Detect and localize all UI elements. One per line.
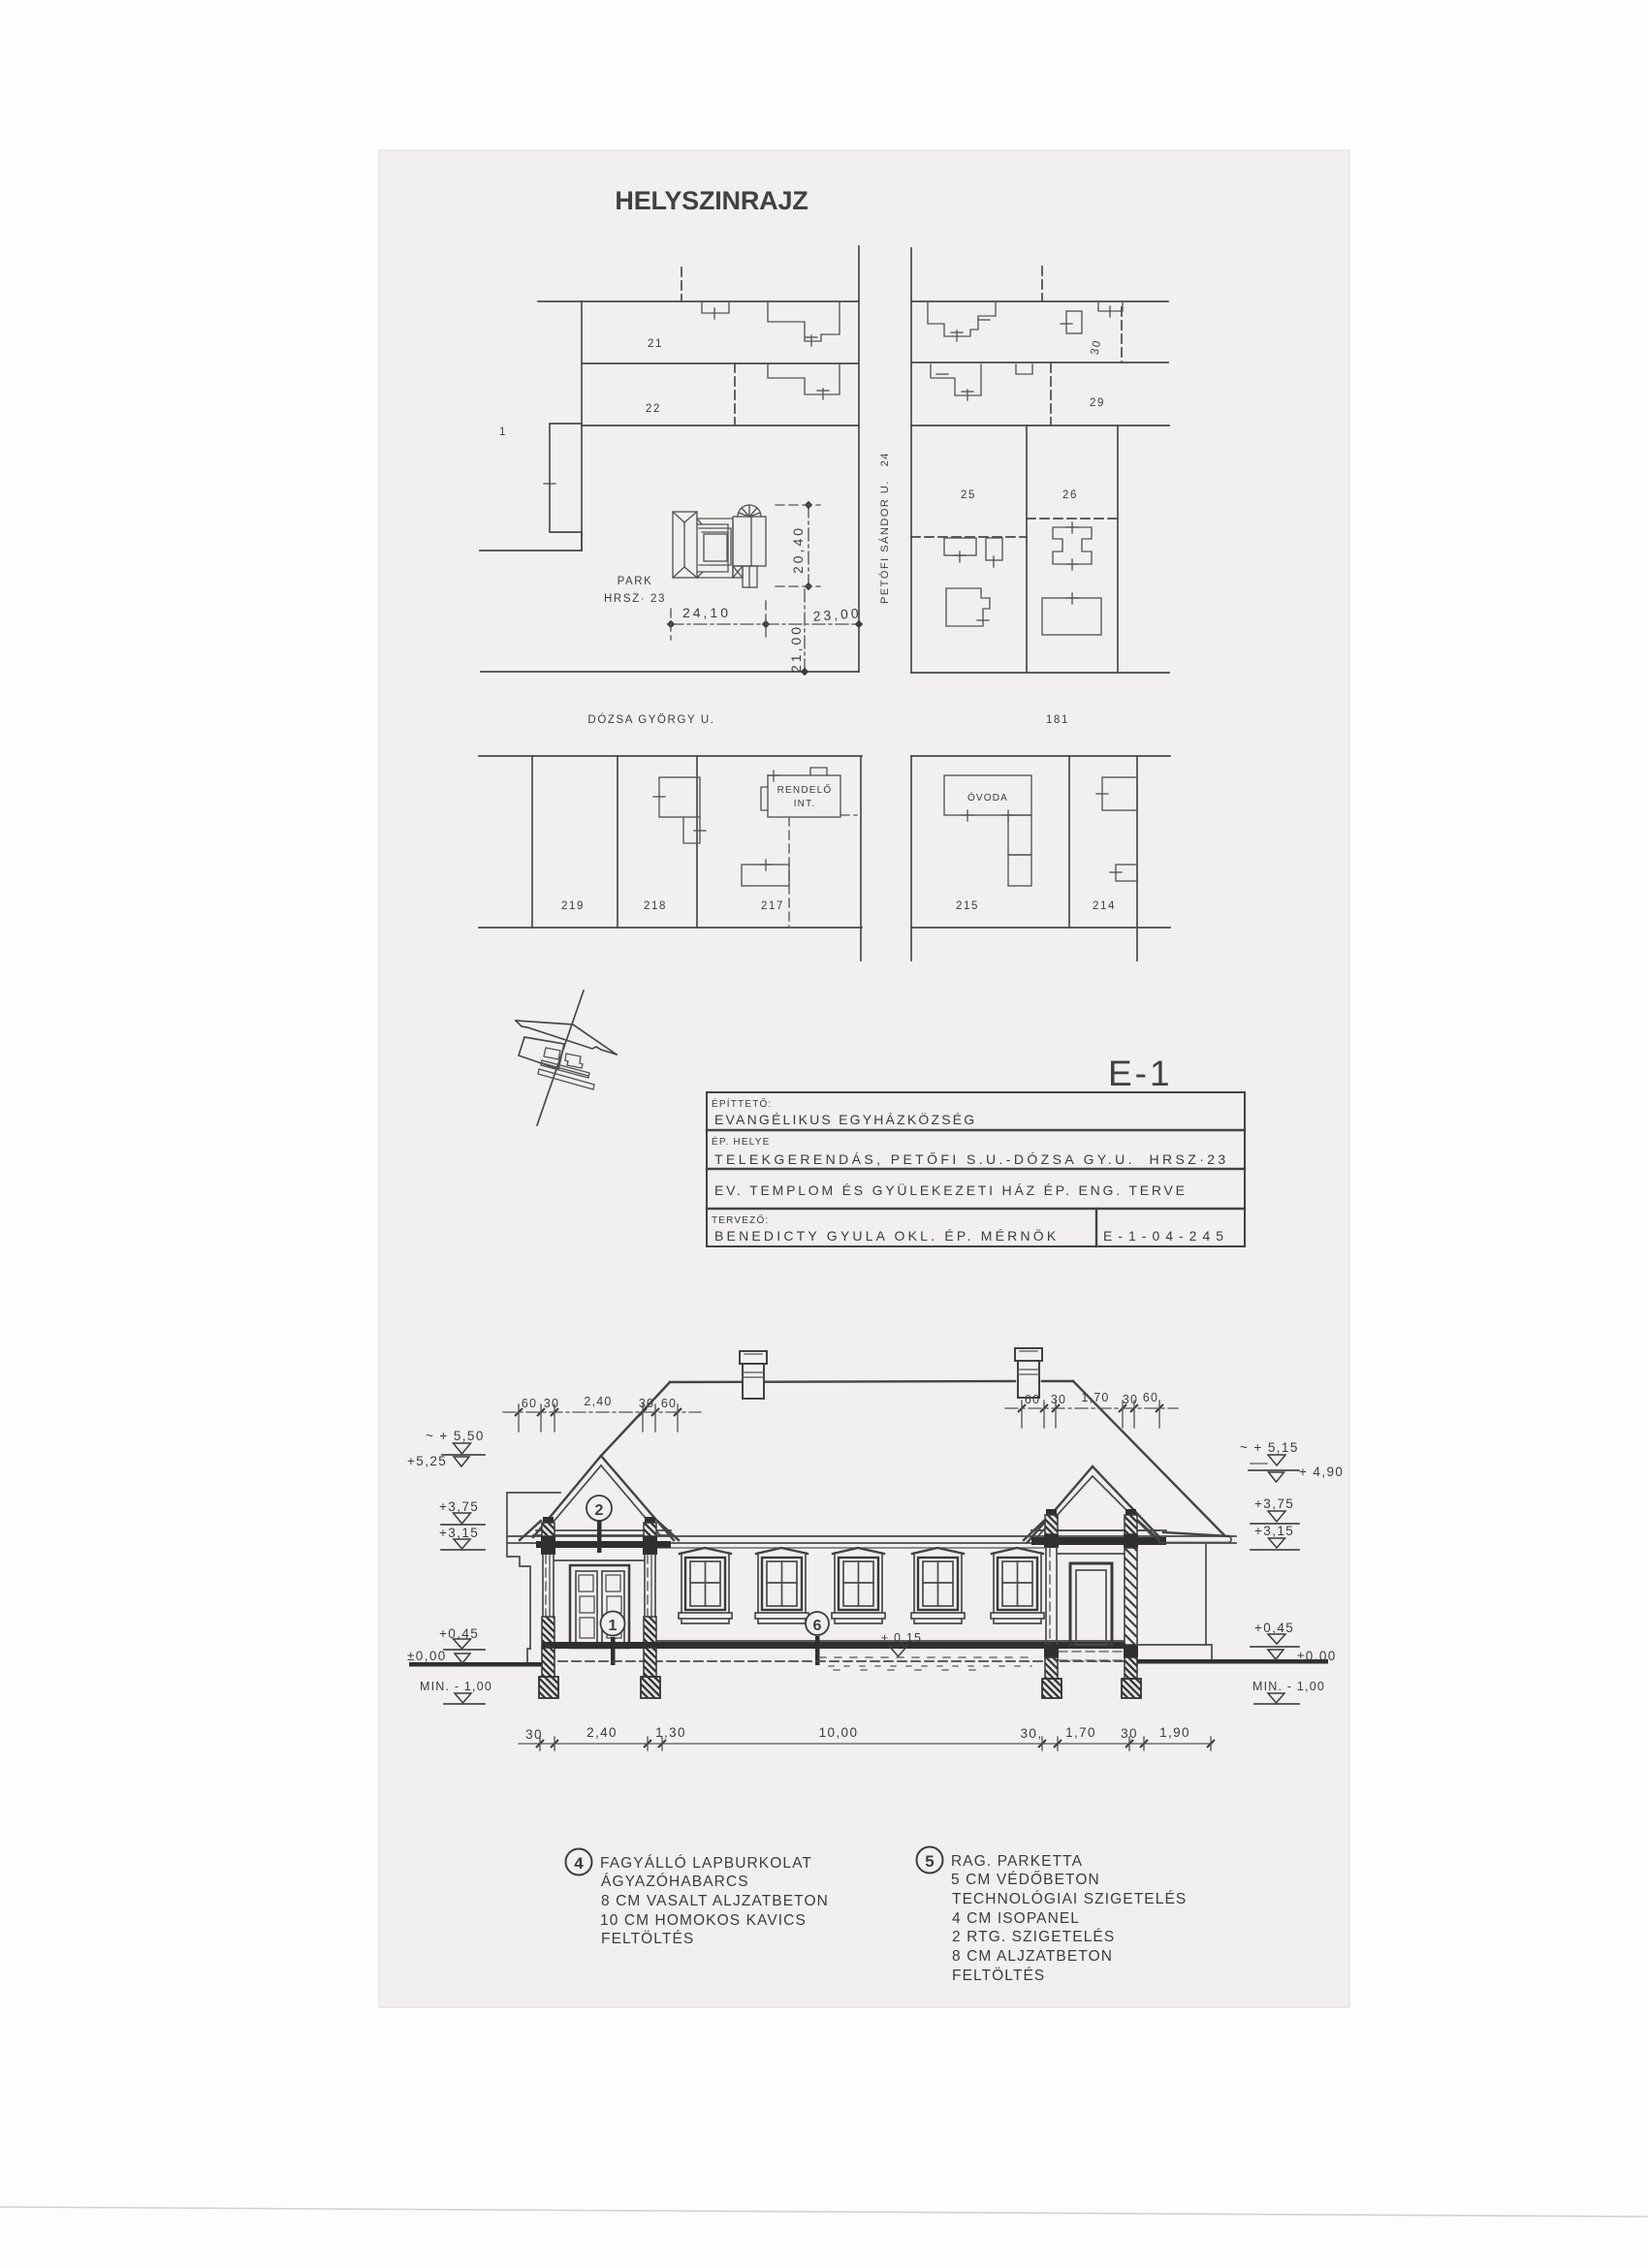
svg-text:2 RTG. SZIGETELÉS: 2 RTG. SZIGETELÉS: [952, 1929, 1115, 1945]
svg-text:MIN. - 1,00: MIN. - 1,00: [420, 1680, 492, 1693]
svg-text:+3,15: +3,15: [439, 1526, 479, 1540]
svg-text:5 CM VÉDŐBETON: 5 CM VÉDŐBETON: [951, 1872, 1100, 1888]
svg-text:8 CM VASALT ALJZATBETON: 8 CM VASALT ALJZATBETON: [601, 1893, 829, 1909]
svg-text:~ + 5,15: ~ + 5,15: [1240, 1440, 1299, 1455]
svg-text:29: 29: [1090, 397, 1105, 409]
svg-text:BENEDICTY GYULA OKL. ÉP. MÉRN: BENEDICTY GYULA OKL. ÉP. MÉRNÖK: [714, 1227, 1059, 1244]
svg-text:HELYSZINRAJZ: HELYSZINRAJZ: [615, 186, 808, 215]
svg-text:+3,75: +3,75: [1254, 1496, 1294, 1511]
svg-text:30: 30: [1121, 1726, 1138, 1741]
svg-text:1: 1: [609, 1618, 618, 1634]
svg-text:DÓZSA GYÖRGY U.: DÓZSA GYÖRGY U.: [587, 713, 714, 726]
svg-text:1,90: 1,90: [1159, 1725, 1190, 1740]
svg-text:E-1: E-1: [1108, 1054, 1173, 1093]
svg-text:21: 21: [648, 338, 663, 350]
svg-text:PETÓFI SÁNDOR U. 24: PETÓFI SÁNDOR U. 24: [878, 452, 891, 604]
svg-text:ÉP. HELYE: ÉP. HELYE: [712, 1135, 770, 1148]
svg-text:24,10: 24,10: [682, 605, 731, 620]
svg-text:ÉPÍTTETŐ:: ÉPÍTTETŐ:: [712, 1096, 772, 1110]
svg-text:30,: 30,: [1021, 1726, 1043, 1741]
svg-text:HRSZ· 23: HRSZ· 23: [604, 593, 666, 605]
svg-text:26: 26: [1062, 489, 1078, 501]
svg-text:30: 30: [639, 1397, 654, 1410]
svg-text:8 CM ALJZATBETON: 8 CM ALJZATBETON: [952, 1948, 1113, 1965]
svg-text:FELTÖLTÉS: FELTÖLTÉS: [952, 1967, 1045, 1984]
svg-text:TERVEZŐ:: TERVEZŐ:: [712, 1213, 769, 1226]
svg-text:1,70: 1,70: [1065, 1725, 1096, 1740]
svg-text:218: 218: [644, 900, 667, 912]
svg-text:INT.: INT.: [794, 799, 816, 809]
svg-text:PARK: PARK: [618, 576, 653, 587]
svg-text:181: 181: [1046, 714, 1069, 726]
svg-text:~ + 5,50: ~ + 5,50: [426, 1429, 485, 1443]
svg-text:10 CM HOMOKOS KAVICS: 10 CM HOMOKOS KAVICS: [600, 1912, 807, 1929]
svg-text:+5,25: +5,25: [407, 1454, 447, 1468]
svg-text:4: 4: [574, 1854, 584, 1873]
svg-text:30: 30: [1051, 1393, 1066, 1406]
svg-text:2,40: 2,40: [586, 1725, 618, 1740]
svg-text:2: 2: [595, 1502, 604, 1519]
svg-text:20,40: 20,40: [790, 525, 806, 574]
svg-text:1,70: 1,70: [1081, 1391, 1109, 1404]
svg-text:+3,15: +3,15: [1254, 1524, 1294, 1538]
svg-text:217: 217: [761, 900, 784, 912]
svg-text:30: 30: [544, 1397, 559, 1410]
svg-text:10,00: 10,00: [819, 1725, 859, 1740]
svg-text:60: 60: [661, 1397, 677, 1410]
svg-text:6: 6: [813, 1618, 822, 1634]
svg-text:TELEKGERENDÁS, PETŐFI S.U.-DÓZ: TELEKGERENDÁS, PETŐFI S.U.-DÓZSA GY.U. H…: [714, 1151, 1229, 1167]
svg-text:+ 0,15: + 0,15: [881, 1631, 922, 1645]
svg-text:4 CM ISOPANEL: 4 CM ISOPANEL: [952, 1910, 1080, 1927]
svg-text:219: 219: [561, 900, 585, 912]
svg-text:±0,00: ±0,00: [1297, 1649, 1337, 1663]
svg-text:214: 214: [1093, 900, 1116, 912]
svg-text:EV. TEMPLOM ÉS GYÜLEKEZETI HÁZ: EV. TEMPLOM ÉS GYÜLEKEZETI HÁZ ÉP. ENG. …: [714, 1181, 1188, 1198]
svg-text:ÁGYAZÓHABARCS: ÁGYAZÓHABARCS: [601, 1874, 749, 1890]
svg-text:1: 1: [499, 426, 507, 438]
svg-text:EVANGÉLIKUS EGYHÁZKÖZSÉG: EVANGÉLIKUS EGYHÁZKÖZSÉG: [714, 1111, 976, 1127]
svg-text:TECHNOLÓGIAI SZIGETELÉS: TECHNOLÓGIAI SZIGETELÉS: [952, 1891, 1187, 1907]
svg-text:215: 215: [956, 900, 979, 912]
svg-text:25: 25: [961, 489, 976, 501]
svg-text:E-1-04-245: E-1-04-245: [1103, 1228, 1229, 1244]
svg-text:+ 4,90: + 4,90: [1299, 1465, 1344, 1479]
svg-text:1,30: 1,30: [655, 1725, 686, 1740]
svg-text:60: 60: [522, 1397, 537, 1410]
svg-text:60: 60: [1143, 1391, 1158, 1404]
svg-text:FAGYÁLLÓ LAPBURKOLAT: FAGYÁLLÓ LAPBURKOLAT: [600, 1855, 812, 1872]
svg-text:5: 5: [925, 1852, 934, 1871]
svg-text:30: 30: [525, 1727, 543, 1742]
svg-text:60: 60: [1025, 1393, 1040, 1406]
svg-text:30: 30: [1123, 1393, 1138, 1406]
svg-text:RENDELŐ: RENDELŐ: [777, 782, 833, 796]
svg-text:±0,00: ±0,00: [407, 1649, 447, 1663]
svg-text:+0,45: +0,45: [1254, 1621, 1294, 1635]
svg-text:MIN. - 1,00: MIN. - 1,00: [1252, 1680, 1325, 1693]
svg-text:2,40: 2,40: [584, 1395, 612, 1408]
svg-text:21,00: 21,00: [788, 624, 804, 673]
svg-text:RAG. PARKETTA: RAG. PARKETTA: [951, 1853, 1083, 1870]
svg-text:+3,75: +3,75: [439, 1499, 479, 1514]
svg-text:FELTÖLTÉS: FELTÖLTÉS: [601, 1930, 694, 1947]
svg-text:22: 22: [646, 403, 661, 415]
svg-text:ÓVODA: ÓVODA: [967, 791, 1008, 803]
